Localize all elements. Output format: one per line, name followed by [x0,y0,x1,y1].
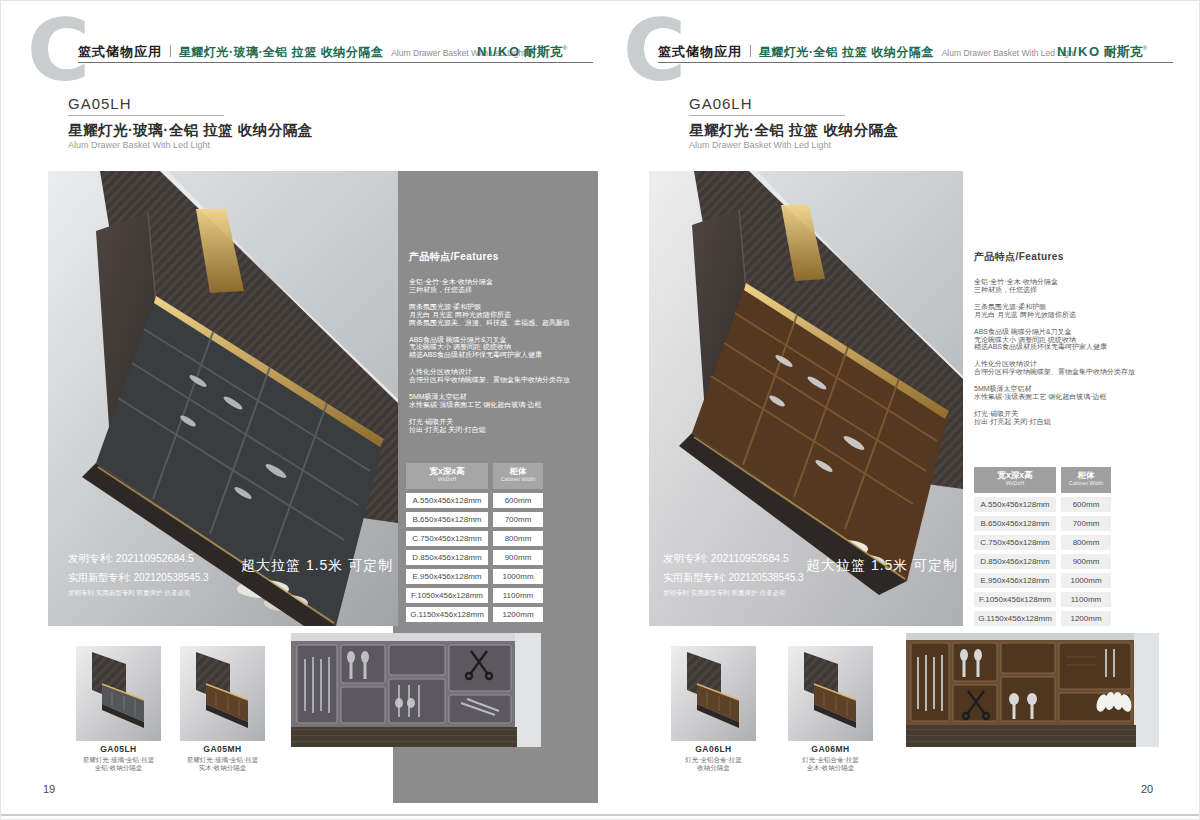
spec-cell-cabinet: 1000mm [1061,573,1111,588]
feature-line: 灯光·磁吸开关 [409,418,591,426]
spec-cell-size: E.950x456x128mm [406,569,488,584]
thumb-desc: 星耀灯光·玻璃·全铝·拉篮 [61,756,176,764]
feature-line: 全铝·全竹·全木·收纳分隔盒 [409,278,591,286]
header-divider [750,45,751,57]
spec-cell-size: G.1150x456x128mm [406,607,488,622]
feature-line: 月光白 月光蓝 两种光效随你所选 [409,311,591,319]
spec-cell-cabinet: 800mm [493,531,543,546]
product-code: GA05LH [68,95,132,112]
spec-cell-size: F.1050x456x128mm [974,592,1056,607]
feature-line: 拉出·灯亮起 关闭·灯自熄 [409,426,591,434]
spec-header-size: 宽x深x高 WxDxH [406,463,488,489]
patent-notice: 发明专利 实用新型专利 双重保护 仿者必究 [68,589,209,598]
patent-invention: 发明专利: 202110952684.5 [663,552,804,566]
spec-cell-cabinet: 1100mm [493,588,543,603]
header-category: 篮式储物应用 [658,44,742,59]
thumb-code: GA05LH [61,744,176,754]
feature-group: 5MM极薄太空铝材 水性氟碳·顶级表面工艺 钢化超白玻璃·边框 [409,393,591,409]
feature-line: 三条氛围光源·柔和护眼 [974,303,1159,311]
feature-line: ABS食品级 碗碟分隔片&刀叉盒 [974,328,1159,336]
header-title: 星耀灯光·全铝 拉篮 收纳分隔盒 [759,45,934,59]
feature-line: 三种材质，任您选择 [409,286,591,294]
drawer-interior-photo [906,633,1159,747]
product-code-rule [68,115,224,116]
spec-cell-size: C.750x456x128mm [406,531,488,546]
spec-cell-cabinet: 800mm [1061,535,1111,550]
feature-line: 拉出·灯亮起 关闭·灯自熄 [974,418,1159,426]
spec-cell-cabinet: 900mm [493,550,543,565]
feature-line: 两条氛围光源·柔和护眼 [409,303,591,311]
spec-header-cabinet-en: Cabinet Width [493,476,543,483]
thumb-desc: 灯光·全铝合金·拉篮 [656,756,771,764]
spec-cell-size: D.850x456x128mm [406,550,488,565]
spec-header-cabinet: 柜体 Cabinet Width [1061,467,1111,493]
thumb-code: GA06LH [656,744,771,754]
feature-line: 月光白 月光蓝 两种光效随你所选 [974,311,1159,319]
page-number: 20 [1141,783,1153,795]
spec-cell-cabinet: 700mm [1061,516,1111,531]
nisko-logo-cn: 耐斯克 [1104,44,1143,59]
spec-header-size-cn: 宽x深x高 [406,463,488,476]
spec-header-cabinet: 柜体 Cabinet Width [493,463,543,489]
nisko-logo-latin: NI/KO [1057,44,1101,59]
thumb-label: GA06MH 灯光·全铝合金·拉篮 全木·收纳分隔盒 [773,744,888,772]
nisko-logo: NI/KO耐斯克® [1057,42,1147,61]
feature-line: 合理分区科学收纳碗碟架、置物盒集中收纳分类存放 [409,376,591,384]
spec-cell-cabinet: 1200mm [1061,611,1111,626]
patent-block: 发明专利: 202110952684.5 实用新型专利: 20212053854… [663,552,804,598]
features-title: 产品特点/Features [974,250,1159,264]
thumb-desc: 收纳分隔盒 [656,764,771,772]
spec-cell-cabinet: 600mm [1061,497,1111,512]
feature-line: 5MM极薄太空铝材 [974,385,1159,393]
thumb-code: GA06MH [773,744,888,754]
thumb-desc: 星耀灯光·玻璃·全铝·拉篮 [165,756,280,764]
feature-line: 人性化分区收纳设计 [409,368,591,376]
spec-cell-cabinet: 1100mm [1061,592,1111,607]
spec-cell-cabinet: 700mm [493,512,543,527]
feature-line: 水性氟碳·顶级表面工艺 钢化超白玻璃·边框 [409,401,591,409]
nisko-logo-latin: NI/KO [477,44,521,59]
feature-line: 灯光·磁吸开关 [974,410,1159,418]
spec-cell-cabinet: 1200mm [493,607,543,622]
feature-group: ABS食品级 碗碟分隔片&刀叉盒 无论碗碟大小 调整间距 统统收纳 精选ABS食… [409,336,591,360]
thumb-photo [180,646,265,741]
thumb-illustration [180,646,265,741]
product-code: GA06LH [689,95,753,112]
feature-line: 合理分区科学收纳碗碟架、置物盒集中收纳分类存放 [974,368,1159,376]
feature-group: 灯光·磁吸开关 拉出·灯亮起 关闭·灯自熄 [409,418,591,434]
features-block: 产品特点/Features 全铝·全竹·全木·收纳分隔盒 三种材质，任您选择 两… [409,250,591,443]
thumb-illustration [671,646,756,741]
spec-cell-size: G.1150x456x128mm [974,611,1056,626]
patent-notice: 发明专利 实用新型专利 双重保护 仿者必究 [663,589,804,598]
feature-line: 两条氛围光源美、浪漫、科技感、幸福感、超高颜值 [409,319,591,327]
spec-cell-size: C.750x456x128mm [974,535,1056,550]
features-title: 产品特点/Features [409,250,591,264]
feature-line: 人性化分区收纳设计 [974,360,1159,368]
feature-line: ABS食品级 碗碟分隔片&刀叉盒 [409,336,591,344]
drawer-interior-illustration [906,633,1159,747]
oversize-banner: 超大拉篮 1.5米 可定制 [806,557,956,575]
page-number: 19 [43,783,55,795]
feature-group: 全铝·全竹·全木·收纳分隔盒 三种材质，任您选择 [974,278,1159,294]
thumb-code: GA05MH [165,744,280,754]
product-code-rule [689,115,845,116]
feature-group: ABS食品级 碗碟分隔片&刀叉盒 无论碗碟大小 调整间距 统统收纳 精选ABS食… [974,328,1159,352]
patent-invention: 发明专利: 202110952684.5 [68,552,209,566]
thumb-illustration [76,646,161,741]
page-header: 篮式储物应用星耀灯光·玻璃·全铝 拉篮 收纳分隔盒Alum Drawer Bas… [78,42,525,61]
product-name: 星耀灯光·玻璃·全铝 拉篮 收纳分隔盒 [68,121,313,140]
feature-line: 5MM极薄太空铝材 [409,393,591,401]
spec-header-size-cn: 宽x深x高 [974,467,1056,480]
patent-block: 发明专利: 202110952684.5 实用新型专利: 20212053854… [68,552,209,598]
feature-group: 灯光·磁吸开关 拉出·灯亮起 关闭·灯自熄 [974,410,1159,426]
spec-cell-size: B.650x456x128mm [974,516,1056,531]
spec-header-cabinet-cn: 柜体 [493,463,543,476]
spec-cell-size: D.850x456x128mm [974,554,1056,569]
oversize-banner: 超大拉篮 1.5米 可定制 [241,557,391,575]
feature-line: 三种材质，任您选择 [974,286,1159,294]
thumb-photo [671,646,756,741]
thumb-label: GA06LH 灯光·全铝合金·拉篮 收纳分隔盒 [656,744,771,772]
header-subtitle-en: Alum Drawer Basket With Led Light [942,48,1076,58]
header-title: 星耀灯光·玻璃·全铝 拉篮 收纳分隔盒 [179,45,383,59]
thumb-label: GA05MH 星耀灯光·玻璃·全铝·拉篮 实木·收纳分隔盒 [165,744,280,772]
nisko-logo: NI/KO耐斯克® [477,42,567,61]
header-category: 篮式储物应用 [78,44,162,59]
feature-group: 人性化分区收纳设计 合理分区科学收纳碗碟架、置物盒集中收纳分类存放 [409,368,591,384]
registered-mark-icon: ® [563,45,567,51]
feature-group: 人性化分区收纳设计 合理分区科学收纳碗碟架、置物盒集中收纳分类存放 [974,360,1159,376]
thumb-desc: 灯光·全铝合金·拉篮 [773,756,888,764]
spec-cell-size: B.650x456x128mm [406,512,488,527]
spec-header-cabinet-cn: 柜体 [1061,467,1111,480]
product-name-en: Alum Drawer Basket With Led Light [689,140,831,150]
registered-mark-icon: ® [1143,45,1147,51]
thumb-desc: 全铝·收纳分隔盒 [61,764,176,772]
spec-table: 宽x深x高 WxDxH 柜体 Cabinet Width A.550x456x1… [974,467,1111,626]
spec-cell-size: E.950x456x128mm [974,573,1056,588]
spec-table: 宽x深x高 WxDxH 柜体 Cabinet Width A.550x456x1… [406,463,543,622]
spec-cell-cabinet: 600mm [493,493,543,508]
nisko-logo-cn: 耐斯克 [524,44,563,59]
thumb-illustration [788,646,873,741]
spec-header-size-en: WxDxH [974,480,1056,487]
patent-utility: 实用新型专利: 202120538545.3 [663,571,804,585]
spec-cell-size: A.550x456x128mm [974,497,1056,512]
patent-utility: 实用新型专利: 202120538545.3 [68,571,209,585]
feature-line: 精选ABS食品级材质环保无毒呵护家人健康 [974,343,1159,351]
thumb-photo [788,646,873,741]
drawer-interior-illustration [291,633,541,747]
feature-line: 水性氟碳·顶级表面工艺 钢化超白玻璃·边框 [974,393,1159,401]
spec-header-size: 宽x深x高 WxDxH [974,467,1056,493]
product-name-en: Alum Drawer Basket With Led Light [68,140,210,150]
feature-line: 全铝·全竹·全木·收纳分隔盒 [974,278,1159,286]
feature-group: 三条氛围光源·柔和护眼 月光白 月光蓝 两种光效随你所选 [974,303,1159,319]
product-name: 星耀灯光·全铝 拉篮 收纳分隔盒 [689,121,898,140]
feature-line: 精选ABS食品级材质环保无毒呵护家人健康 [409,351,591,359]
header-rule [78,62,593,63]
drawer-interior-photo [291,633,541,747]
thumb-desc: 全木·收纳分隔盒 [773,764,888,772]
spec-header-cabinet-en: Cabinet Width [1061,480,1111,487]
spec-cell-cabinet: 1000mm [493,569,543,584]
feature-group: 全铝·全竹·全木·收纳分隔盒 三种材质，任您选择 [409,278,591,294]
footer-rule [1,814,1200,816]
spec-header-size-en: WxDxH [406,476,488,483]
thumb-label: GA05LH 星耀灯光·玻璃·全铝·拉篮 全铝·收纳分隔盒 [61,744,176,772]
spec-cell-size: A.550x456x128mm [406,493,488,508]
thumb-desc: 实木·收纳分隔盒 [165,764,280,772]
thumb-photo [76,646,161,741]
spec-cell-cabinet: 900mm [1061,554,1111,569]
page-header: 篮式储物应用星耀灯光·全铝 拉篮 收纳分隔盒Alum Drawer Basket… [658,42,1076,61]
features-block: 产品特点/Features 全铝·全竹·全木·收纳分隔盒 三种材质，任您选择 三… [974,250,1159,435]
header-divider [170,45,171,57]
header-rule [658,62,1173,63]
feature-group: 两条氛围光源·柔和护眼 月光白 月光蓝 两种光效随你所选 两条氛围光源美、浪漫、… [409,303,591,327]
spec-cell-size: F.1050x456x128mm [406,588,488,603]
catalog-spread: C 篮式储物应用星耀灯光·玻璃·全铝 拉篮 收纳分隔盒Alum Drawer B… [0,0,1200,820]
feature-group: 5MM极薄太空铝材 水性氟碳·顶级表面工艺 钢化超白玻璃·边框 [974,385,1159,401]
